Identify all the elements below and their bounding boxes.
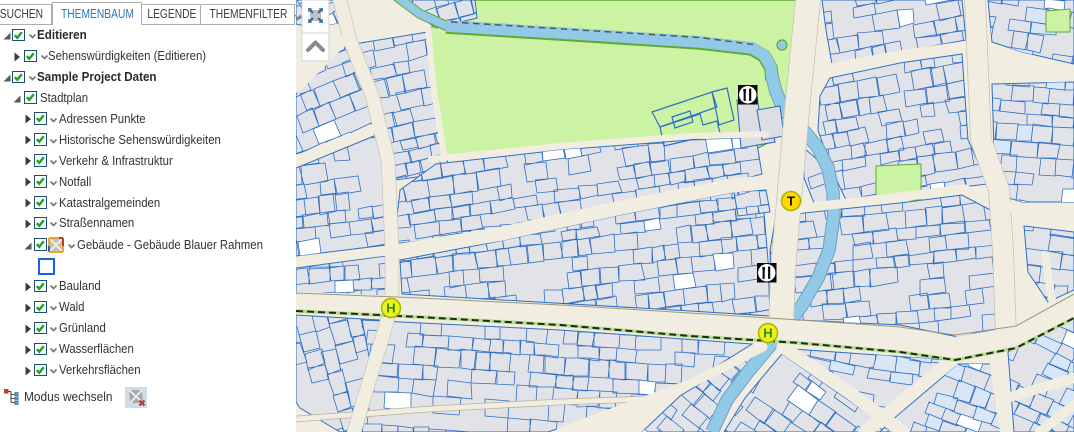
svg-text:T: T <box>787 194 795 209</box>
svg-text:H: H <box>763 326 772 341</box>
svg-text:H: H <box>386 301 395 316</box>
